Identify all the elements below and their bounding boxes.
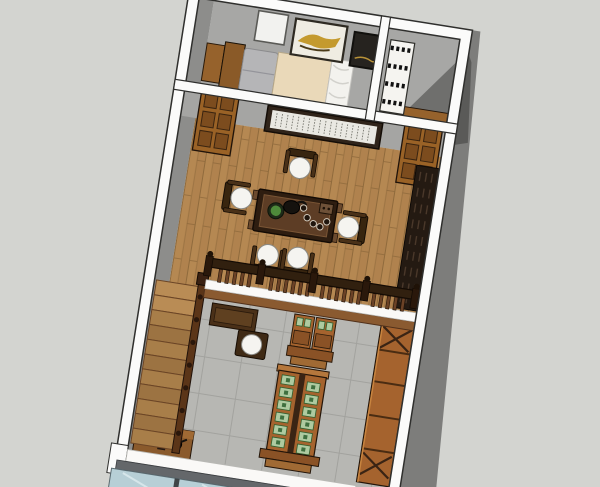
display-cell-item bbox=[280, 415, 285, 420]
display-cell-item bbox=[278, 428, 283, 433]
display-cell-item bbox=[307, 410, 312, 415]
display-cell-item bbox=[301, 447, 306, 452]
display-cell-item bbox=[286, 378, 291, 383]
3d-viewport[interactable] bbox=[0, 0, 600, 487]
empty-picture-frame bbox=[254, 11, 288, 45]
display-cell-item bbox=[282, 403, 287, 408]
display-cell-item bbox=[311, 385, 316, 390]
display-cell-item bbox=[309, 397, 314, 402]
render-stage bbox=[0, 0, 600, 487]
display-cell-item bbox=[284, 390, 289, 395]
display-cell-item bbox=[303, 435, 308, 440]
display-cell-item bbox=[276, 440, 281, 445]
tea-caddy bbox=[319, 203, 333, 215]
round-stool bbox=[235, 329, 269, 359]
display-cell-item bbox=[305, 422, 310, 427]
